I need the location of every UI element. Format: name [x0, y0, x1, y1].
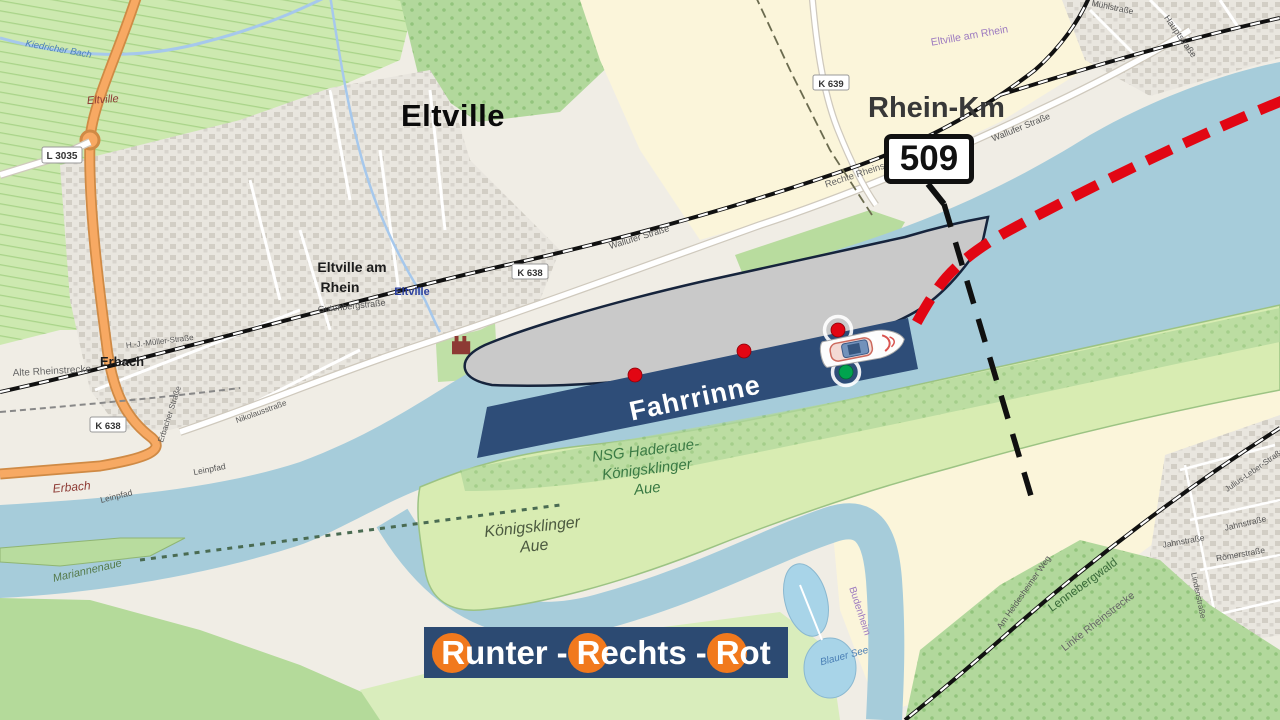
red-buoy-1 — [628, 368, 642, 382]
label-station: Eltville — [394, 286, 429, 298]
ref-k639: K 639 — [813, 75, 849, 90]
banner-word-runter: R unter — [441, 634, 547, 672]
label-nsg-3: Aue — [632, 479, 662, 499]
rhein-km-label: Rhein-Km — [868, 92, 998, 125]
banner-separator: - — [696, 634, 707, 672]
label-town-line1: Eltville am — [317, 259, 386, 275]
banner-word-rest: ot — [740, 634, 771, 672]
map-stage: Eltville am Rhein Eltville Gutenbergstra… — [0, 0, 1280, 720]
ref-l3035: L 3035 — [42, 147, 82, 163]
label-k638: K 638 — [95, 421, 120, 432]
city-overlay-label: Eltville — [401, 98, 505, 134]
banner-word-rest: unter — [465, 634, 548, 672]
green-buoy — [839, 365, 853, 379]
label-aue-2: Aue — [518, 536, 549, 556]
banner-word-rot: R ot — [716, 634, 771, 672]
banner-word-rechts: R echts — [577, 634, 687, 672]
red-buoy-3 — [831, 323, 845, 337]
red-buoy-2 — [737, 344, 751, 358]
label-k639: K 639 — [818, 79, 843, 90]
label-town-line2: Rhein — [321, 279, 360, 295]
banner-letter: R — [441, 634, 465, 672]
banner-letter: R — [577, 634, 601, 672]
ref-k638-west: K 638 — [90, 417, 126, 432]
rhein-km-marker: 509 — [884, 134, 974, 184]
base-map: Eltville am Rhein Eltville Gutenbergstra… — [0, 0, 1280, 720]
label-k638-2: K 638 — [517, 268, 542, 279]
banner-letter: R — [716, 634, 740, 672]
label-erbach: Erbach — [100, 354, 144, 369]
banner-word-rest: echts — [600, 634, 686, 672]
label-l3035: L 3035 — [47, 151, 78, 162]
rhein-km-value: 509 — [900, 139, 958, 179]
banner-separator: - — [557, 634, 568, 672]
label-eltville-vineyard: Eltville — [87, 93, 120, 107]
mnemonic-banner: R unter - R echts - R ot — [424, 627, 788, 678]
ref-k638-east: K 638 — [512, 264, 548, 279]
